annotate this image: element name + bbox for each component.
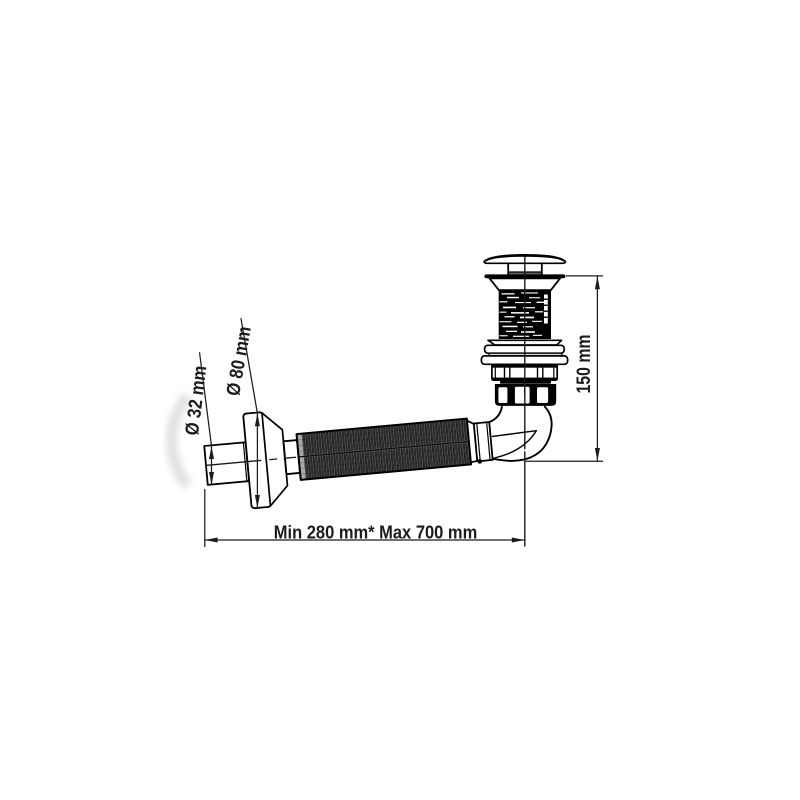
svg-text:Min 280 mm* Max 700 mm: Min 280 mm* Max 700 mm — [274, 521, 478, 542]
svg-text:150 mm: 150 mm — [574, 335, 595, 394]
